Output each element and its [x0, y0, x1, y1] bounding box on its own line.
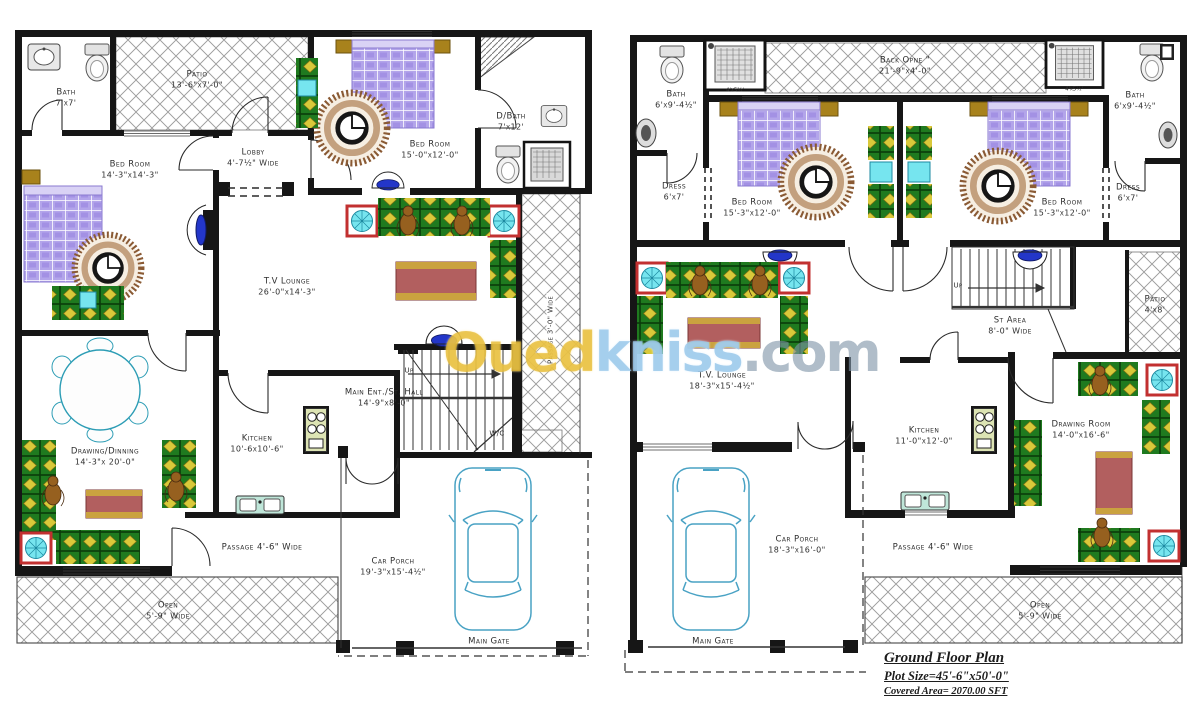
room-label-passage: Passage 4'-6" Wide: [222, 542, 303, 553]
side-table-icon: [22, 170, 40, 184]
label-main-gate: Main Gate: [468, 636, 510, 647]
wall-basin-icon: [1159, 122, 1177, 148]
washbasin-icon: [28, 44, 60, 70]
bedroom1-furniture: [22, 170, 214, 320]
room-label-car-porch-right: Car Porch18'-3"x16'-0": [768, 534, 825, 555]
room-label-st-area: St Area8'-0" Wide: [988, 315, 1032, 336]
right-floorplan: [625, 35, 1187, 672]
floor-plan-canvas: Bath7'x7' Patio13'-6"x7'-0" Bed Room14'-…: [0, 0, 1200, 716]
room-label-dbath: D/Bath7'x12': [496, 111, 525, 132]
label-up: Up: [954, 281, 963, 290]
label-up: Up: [405, 366, 414, 375]
room-label-car-porch: Car Porch19'-3"x15'-4½": [360, 556, 426, 577]
round-rug-icon: [963, 151, 1033, 221]
room-label-tv-lounge: T.V Lounge26'-0"x14'-3": [258, 276, 315, 297]
basin-icon: [426, 326, 462, 346]
shower-icon: [705, 40, 765, 90]
room-label-bath: Bath7'x7': [56, 87, 77, 108]
room-label-kitchen: Kitchen10'-6x10'-6": [230, 433, 283, 454]
label-main-gate-right: Main Gate: [692, 636, 734, 647]
room-label-bedroom-left: Bed Room15'-3"x12'-0": [723, 197, 780, 218]
title-block: Ground Floor Plan Plot Size=45'-6"x50'-0…: [884, 650, 1009, 697]
room-label-kitchen-right: Kitchen11'-0"x12'-0": [895, 425, 952, 446]
label-shower-size: 4'x5½': [726, 87, 744, 94]
washbasin-icon: [541, 106, 567, 127]
room-label-drawing-room: Drawing Room14'-0"x16'-6": [1051, 419, 1110, 440]
car-icon: [449, 468, 537, 630]
carpet-icon: [1096, 452, 1132, 514]
room-label-back-open: Back Opne "21'-9"x4'-0": [879, 55, 931, 76]
glass-table-icon: [1149, 531, 1179, 561]
room-label-tv-lounge-right: T.V. Lounge18'-3"x15'-4½": [689, 370, 755, 391]
sofa-icon: [1078, 362, 1138, 396]
sofa-icon: [1014, 420, 1042, 506]
tv-lounge-furniture-left: [347, 198, 519, 346]
room-label-side-passage: Passage 3'-0" Wide: [546, 293, 555, 367]
wall-basin-icon: [187, 205, 214, 255]
stove-icon: [971, 406, 997, 454]
glass-table-icon: [779, 263, 809, 293]
toilet-icon: [85, 44, 109, 81]
room-label-bedroom1: Bed Room14'-3"x14'-3": [101, 159, 158, 180]
round-rug-icon: [781, 147, 851, 217]
round-rug-icon: [317, 93, 387, 163]
stove-icon: [303, 406, 329, 454]
glass-table-icon: [489, 206, 519, 236]
shower-icon: [1046, 40, 1103, 88]
room-label-bedroom-right: Bed Room15'-3"x12'-0": [1033, 197, 1090, 218]
bedroom2-furniture: [296, 40, 450, 190]
sofa-icon: [378, 198, 490, 236]
kitchen-fixtures-left: [236, 406, 329, 514]
shower-icon: [524, 142, 570, 188]
room-label-patio: Patio13'-6"x7'-0": [171, 69, 223, 90]
label-wc: W/C: [489, 429, 504, 438]
kitchen-fixtures-right: [901, 406, 997, 510]
sofa-icon: [1142, 400, 1170, 454]
room-label-open-right: Open5'-9" Wide: [1018, 600, 1062, 621]
plot-size: Plot Size=45'-6"x50'-0": [884, 669, 1009, 684]
carpet-icon: [396, 262, 476, 300]
drawing-room-furniture-right: [1014, 362, 1179, 562]
tv-lounge-furniture-right: [637, 262, 809, 354]
room-label-lobby: Lobby4'-7½" Wide: [227, 147, 279, 168]
plan-title: Ground Floor Plan: [884, 650, 1009, 667]
room-label-bath-left: Bath6'x9'-4½": [655, 89, 697, 110]
wall-basin-icon: [636, 119, 656, 147]
room-label-bedroom2: Bed Room15'-0"x12'-0": [401, 139, 458, 160]
covered-area: Covered Area= 2070.00 SFT: [884, 686, 1009, 697]
label-shower-size: 4'x5½': [1065, 86, 1083, 93]
room-label-drawing: Drawing/Dinning14'-3"x 20'-0": [71, 446, 139, 467]
sofa-icon: [637, 296, 663, 354]
side-table-icon: [80, 292, 96, 308]
carpet-icon: [688, 318, 760, 348]
glass-table-icon: [1147, 365, 1177, 395]
glass-table-icon: [21, 533, 51, 563]
sofa-icon: [56, 530, 140, 564]
toilet-icon: [496, 146, 520, 183]
dining-set-icon: [52, 338, 148, 442]
car-icon: [667, 468, 755, 630]
room-label-open: Open5'-9" Wide: [146, 600, 190, 621]
room-label-passage-right: Passage 4'-6" Wide: [893, 542, 974, 553]
glass-table-icon: [637, 263, 667, 293]
room-label-dress-left: Dress6'x7': [662, 181, 686, 202]
sink-icon: [901, 492, 949, 510]
room-label-patio-right: Patio4'x8': [1145, 294, 1166, 315]
room-label-main-ent: Main Ent./St. Hall14'-9"x8'-0": [345, 387, 423, 408]
room-label-bath-right: Bath6'x9'-4½": [1114, 90, 1156, 111]
sofa-icon: [490, 240, 516, 298]
carpet-icon: [86, 490, 142, 518]
toilet-icon: [660, 46, 684, 83]
sofa-icon: [780, 296, 808, 354]
basin-icon: [372, 172, 404, 190]
sink-icon: [236, 496, 284, 514]
glass-table-icon: [347, 206, 377, 236]
room-label-dress-right: Dress6'x7': [1116, 182, 1140, 203]
